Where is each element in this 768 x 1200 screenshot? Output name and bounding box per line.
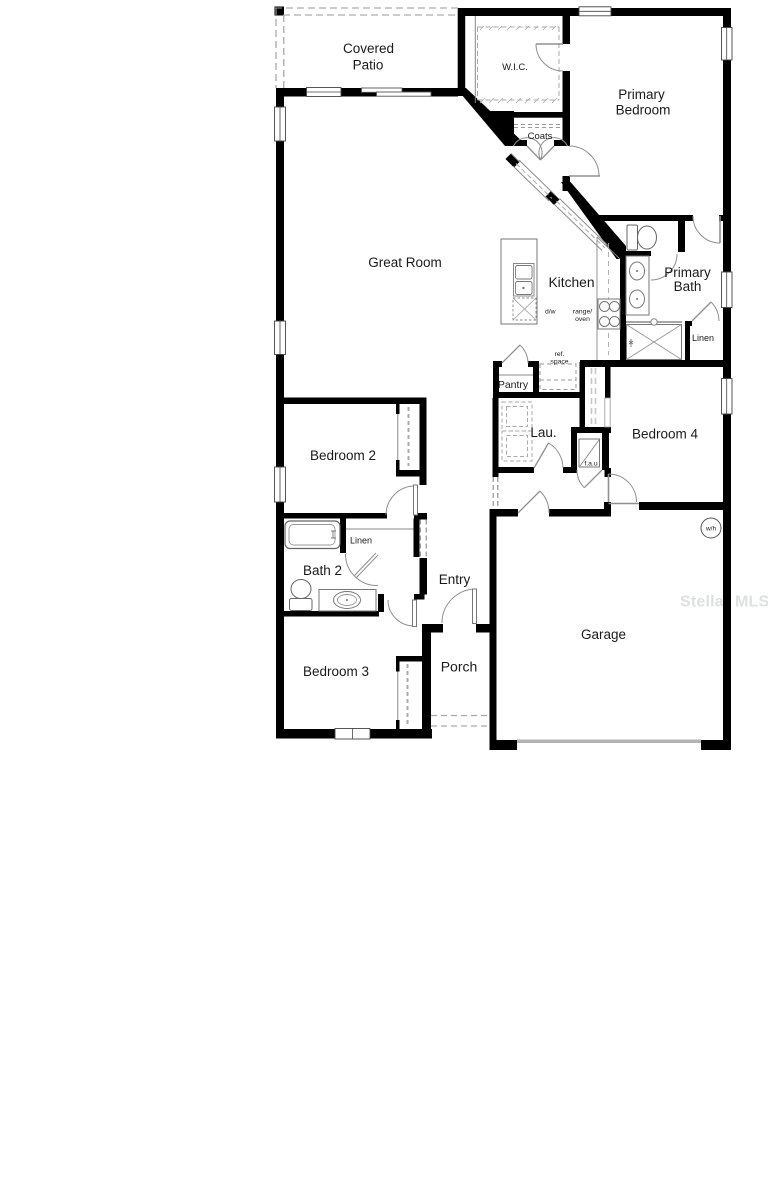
svg-text:Covered: Covered <box>343 41 394 56</box>
svg-text:space: space <box>550 359 568 366</box>
svg-text:W.I.C.: W.I.C. <box>502 62 528 73</box>
svg-text:f.a.u: f.a.u <box>584 461 597 468</box>
svg-text:Bedroom 2: Bedroom 2 <box>310 448 376 463</box>
svg-text:Pantry: Pantry <box>498 379 529 391</box>
svg-text:Linen: Linen <box>692 333 714 343</box>
svg-text:Porch: Porch <box>441 659 478 675</box>
svg-text:Bedroom 4: Bedroom 4 <box>632 427 699 442</box>
svg-text:w/h: w/h <box>705 526 717 533</box>
svg-text:range/: range/ <box>573 309 592 316</box>
svg-text:Great Room: Great Room <box>368 255 442 270</box>
svg-text:Lau.: Lau. <box>530 425 556 440</box>
svg-text:Bedroom: Bedroom <box>616 103 671 118</box>
svg-text:Linen: Linen <box>350 536 372 546</box>
svg-text:Bedroom 3: Bedroom 3 <box>303 664 369 679</box>
svg-text:Bath: Bath <box>674 279 702 294</box>
svg-text:Primary: Primary <box>618 87 665 102</box>
svg-text:Coats: Coats <box>528 131 553 142</box>
svg-text:d/w: d/w <box>545 309 556 316</box>
svg-text:Bath 2: Bath 2 <box>303 563 342 578</box>
svg-text:Garage: Garage <box>581 627 626 642</box>
svg-text:oven: oven <box>575 316 590 323</box>
svg-text:Primary: Primary <box>664 265 711 280</box>
svg-text:ref.: ref. <box>555 351 565 358</box>
svg-text:Entry: Entry <box>439 572 471 587</box>
svg-text:Patio: Patio <box>353 58 384 73</box>
svg-text:Kitchen: Kitchen <box>548 275 594 290</box>
